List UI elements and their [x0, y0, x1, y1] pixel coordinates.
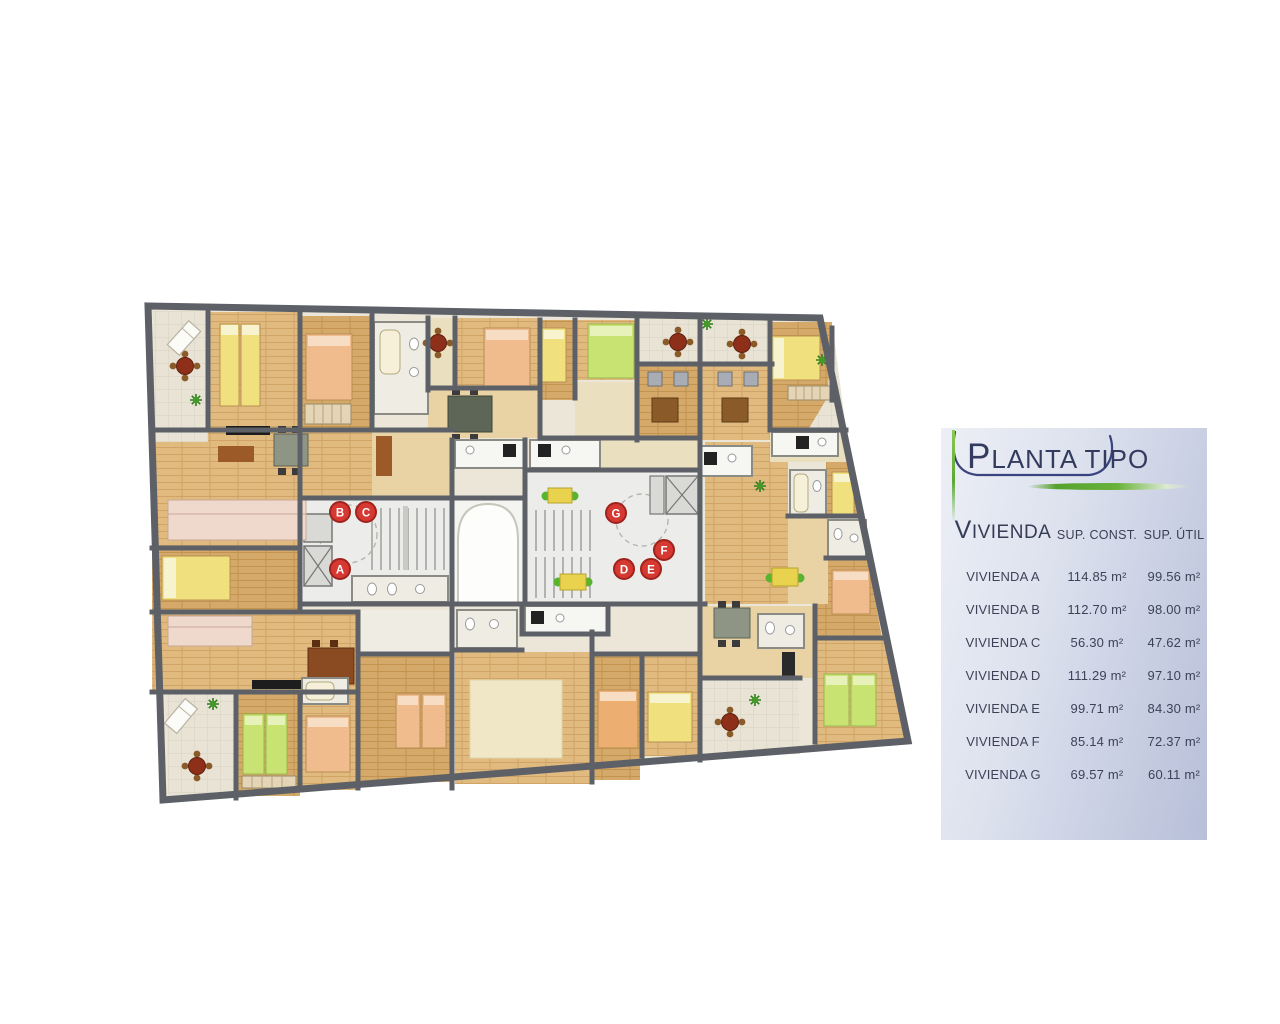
svg-text:A: A	[336, 565, 344, 577]
column-header-sup-util: SUP. ÚTIL	[1141, 528, 1207, 545]
svg-text:F: F	[660, 546, 667, 558]
table-row: VIVIENDA B 112.70 m² 98.00 m²	[953, 593, 1207, 626]
unit-badge-d: D	[614, 559, 634, 579]
bed	[772, 336, 820, 380]
svg-text:G: G	[612, 509, 621, 521]
bathroom	[374, 322, 428, 414]
table-row: VIVIENDA G 69.57 m² 60.11 m²	[953, 758, 1207, 791]
table-header: VIVIENDA SUP. CONST. SUP. ÚTIL	[953, 516, 1207, 545]
wardrobe-dark	[782, 652, 795, 676]
unit-sup-util: 84.30 m²	[1141, 701, 1207, 716]
elevator-shaft	[304, 514, 332, 542]
kitchen	[530, 440, 600, 468]
column-header-vivienda: VIVIENDA	[953, 516, 1053, 545]
bathroom	[758, 614, 804, 648]
unit-badge-a: A	[330, 559, 350, 579]
unit-badge-f: F	[654, 540, 674, 560]
unit-sup-const: 56.30 m²	[1053, 635, 1141, 650]
sofa	[168, 616, 252, 646]
legend-title: PLANTA TIPO	[967, 437, 1149, 477]
svg-text:B: B	[336, 508, 344, 520]
unit-sup-util: 98.00 m²	[1141, 602, 1207, 617]
unit-sup-util: 97.10 m²	[1141, 668, 1207, 683]
legend-panel: PLANTA TIPO VIVIENDA SUP. CONST. SUP. ÚT…	[941, 428, 1207, 840]
bed	[306, 716, 350, 772]
unit-sup-const: 99.71 m²	[1053, 701, 1141, 716]
sofa	[168, 500, 306, 540]
sideboard	[376, 436, 392, 476]
bed	[162, 556, 230, 600]
table-row: VIVIENDA F 85.14 m² 72.37 m²	[953, 725, 1207, 758]
core-bathroom	[352, 576, 448, 602]
svg-text:C: C	[362, 508, 370, 520]
unit-sup-util: 47.62 m²	[1141, 635, 1207, 650]
unit-sup-const: 111.29 m²	[1053, 668, 1141, 683]
unit-sup-const: 112.70 m²	[1053, 602, 1141, 617]
table-row: VIVIENDA A 114.85 m² 99.56 m²	[953, 560, 1207, 593]
bathroom	[790, 470, 826, 516]
areas-table: VIVIENDA A 114.85 m² 99.56 m² VIVIENDA B…	[953, 560, 1207, 791]
bed	[832, 570, 870, 614]
unit-sup-const: 69.57 m²	[1053, 767, 1141, 782]
table-row: VIVIENDA E 99.71 m² 84.30 m²	[953, 692, 1207, 725]
kitchen	[525, 606, 608, 634]
svg-text:D: D	[620, 565, 628, 577]
bed	[648, 692, 692, 742]
kitchen	[700, 446, 752, 476]
rug	[470, 680, 562, 758]
unit-name: VIVIENDA D	[953, 668, 1053, 683]
unit-name: VIVIENDA E	[953, 701, 1053, 716]
unit-badge-g: G	[606, 503, 626, 523]
unit-sup-util: 60.11 m²	[1141, 767, 1207, 782]
column-header-sup-const: SUP. CONST.	[1053, 528, 1141, 545]
unit-name: VIVIENDA C	[953, 635, 1053, 650]
unit-name: VIVIENDA F	[953, 734, 1053, 749]
kitchen	[772, 432, 838, 456]
table-row: VIVIENDA D 111.29 m² 97.10 m²	[953, 659, 1207, 692]
page: A B C D E F G	[0, 0, 1280, 1024]
unit-badge-b: B	[330, 502, 350, 522]
unit-name: VIVIENDA A	[953, 569, 1053, 584]
unit-sup-const: 85.14 m²	[1053, 734, 1141, 749]
bed	[598, 690, 638, 748]
bed	[306, 334, 352, 400]
unit-badge-e: E	[641, 559, 661, 579]
bed	[588, 324, 634, 378]
unit-badge-c: C	[356, 502, 376, 522]
kitchen	[455, 440, 525, 468]
sideboard	[218, 446, 254, 462]
green-accent-line	[952, 430, 955, 522]
unit-sup-const: 114.85 m²	[1053, 569, 1141, 584]
elevator-left	[304, 546, 332, 586]
unit-name: VIVIENDA G	[953, 767, 1053, 782]
table-row: VIVIENDA C 56.30 m² 47.62 m²	[953, 626, 1207, 659]
svg-text:E: E	[647, 565, 655, 577]
green-accent-swoosh	[1027, 483, 1191, 490]
unit-name: VIVIENDA B	[953, 602, 1053, 617]
unit-sup-util: 72.37 m²	[1141, 734, 1207, 749]
bed	[484, 328, 530, 386]
elevator-right	[666, 476, 698, 514]
bathroom	[457, 610, 517, 648]
unit-sup-util: 99.56 m²	[1141, 569, 1207, 584]
bed	[542, 328, 566, 382]
